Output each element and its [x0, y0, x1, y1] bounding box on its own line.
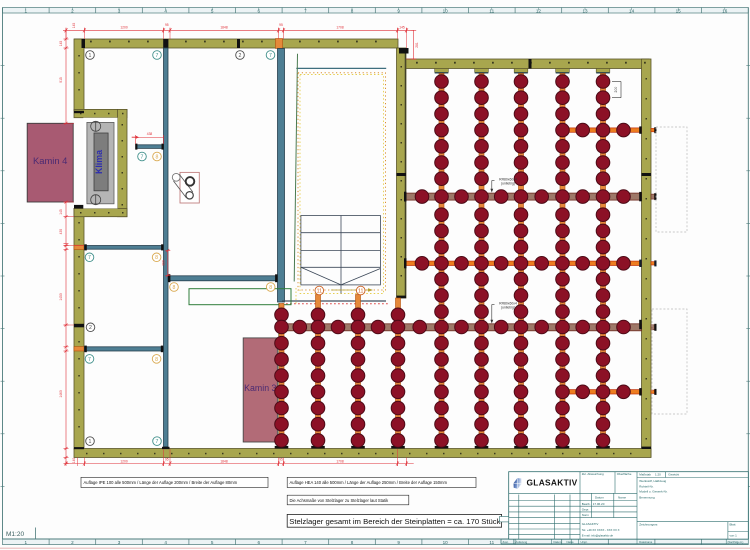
svg-text:Kamin 4: Kamin 4 [33, 155, 67, 166]
svg-text:1848: 1848 [220, 25, 228, 29]
svg-text:1460: 1460 [59, 390, 63, 398]
svg-text:5: 5 [211, 8, 214, 13]
svg-text:1848: 1848 [220, 459, 228, 463]
svg-text:5: 5 [211, 540, 214, 545]
svg-text:7: 7 [269, 53, 272, 59]
svg-text:140: 140 [72, 458, 76, 464]
svg-text:Gepr.: Gepr. [582, 508, 590, 512]
svg-text:2: 2 [71, 8, 74, 13]
svg-text:Änderung: Änderung [516, 540, 528, 544]
svg-text:4: 4 [164, 8, 167, 13]
svg-text:GLASAKTIV: GLASAKTIV [582, 522, 599, 526]
svg-text:1:20: 1:20 [655, 472, 661, 476]
svg-text:Kamin 3: Kamin 3 [244, 383, 276, 393]
svg-text:95: 95 [165, 458, 169, 462]
svg-text:7: 7 [304, 8, 307, 13]
svg-text:12: 12 [536, 8, 542, 13]
svg-text:7: 7 [88, 255, 91, 261]
svg-text:Oberfläche: Oberfläche [617, 472, 632, 476]
svg-text:2: 2 [71, 540, 74, 545]
svg-text:390: 390 [162, 260, 166, 266]
svg-text:8: 8 [351, 8, 354, 13]
svg-text:15: 15 [676, 8, 682, 13]
svg-text:(unliebig): (unliebig) [501, 182, 515, 186]
svg-text:1: 1 [25, 540, 28, 545]
svg-text:Datum: Datum [554, 540, 563, 544]
svg-text:Werkstoff, Halbzeug: Werkstoff, Halbzeug [639, 479, 666, 483]
svg-text:(Nachfolge A.): (Nachfolge A.) [728, 541, 744, 544]
svg-text:13: 13 [582, 8, 588, 13]
svg-text:1: 1 [89, 53, 92, 59]
svg-text:2: 2 [89, 325, 92, 331]
svg-text:10: 10 [443, 8, 449, 13]
svg-text:Gewicht: Gewicht [668, 472, 679, 476]
svg-text:Tel. +49 XX XXXX - XXX XX X: Tel. +49 XX XXXX - XXX XX X [582, 528, 620, 532]
svg-text:145: 145 [59, 209, 63, 215]
svg-text:11: 11 [358, 288, 363, 294]
svg-text:7: 7 [141, 154, 144, 160]
svg-text:1708: 1708 [336, 25, 344, 29]
svg-text:Benennung: Benennung [639, 496, 655, 500]
svg-text:7: 7 [156, 439, 159, 445]
svg-text:Urspr.: Urspr. [581, 540, 588, 544]
svg-text:Name: Name [618, 496, 626, 500]
svg-text:Auflage HEA 140 alle 500mm / L: Auflage HEA 140 alle 500mm / Länge der A… [290, 480, 448, 485]
svg-text:145: 145 [59, 41, 63, 47]
svg-text:8: 8 [269, 285, 272, 291]
svg-text:9: 9 [397, 540, 400, 545]
svg-text:7: 7 [88, 357, 91, 363]
svg-text:430: 430 [59, 229, 63, 235]
svg-text:(unliebig): (unliebig) [501, 306, 515, 310]
svg-text:10: 10 [443, 540, 449, 545]
svg-text:145: 145 [399, 25, 405, 29]
svg-text:915: 915 [59, 77, 63, 83]
svg-text:Modell o. Gesenk-Nr.: Modell o. Gesenk-Nr. [639, 490, 667, 494]
svg-text:Datum: Datum [595, 496, 604, 500]
svg-text:Maßstab: Maßstab [639, 472, 651, 476]
svg-text:6: 6 [258, 540, 261, 545]
svg-text:Rohteil-Nr.: Rohteil-Nr. [639, 485, 653, 489]
svg-text:1708: 1708 [336, 459, 344, 463]
svg-text:3: 3 [118, 8, 121, 13]
svg-text:Blatt: Blatt [730, 523, 736, 527]
svg-text:Norm: Norm [582, 513, 590, 517]
svg-text:7: 7 [156, 53, 159, 59]
svg-text:8: 8 [173, 285, 176, 291]
svg-text:Zeichnungsnr.: Zeichnungsnr. [639, 523, 658, 527]
svg-text:11: 11 [489, 540, 494, 545]
svg-text:11: 11 [317, 288, 322, 294]
svg-text:3: 3 [118, 540, 121, 545]
svg-text:Bearb.: Bearb. [582, 502, 591, 506]
svg-text:95: 95 [165, 23, 169, 27]
svg-text:7: 7 [304, 540, 307, 545]
svg-text:Zul. Abweichung: Zul. Abweichung [582, 472, 604, 476]
svg-text:16: 16 [722, 8, 728, 13]
svg-text:von 1: von 1 [730, 534, 738, 538]
svg-text:11: 11 [489, 8, 494, 13]
svg-text:Auflage IPE 100 alle 500mm / L: Auflage IPE 100 alle 500mm / Länge der A… [84, 480, 238, 485]
svg-text:8: 8 [155, 255, 158, 261]
svg-text:14: 14 [629, 8, 635, 13]
svg-text:1200: 1200 [120, 25, 128, 29]
svg-text:2: 2 [239, 53, 242, 59]
svg-text:E-mail: info@glasaktiv.de: E-mail: info@glasaktiv.de [582, 533, 614, 537]
svg-text:4: 4 [164, 540, 167, 545]
svg-text:Zust.: Zust. [503, 540, 509, 544]
svg-text:1: 1 [89, 439, 92, 445]
svg-text:Dateiname: Dateiname [639, 540, 653, 544]
svg-text:GLASAKTIV: GLASAKTIV [527, 478, 578, 488]
svg-text:8: 8 [351, 540, 354, 545]
svg-text:281: 281 [415, 42, 419, 48]
svg-text:95: 95 [279, 458, 283, 462]
svg-text:Stelzlager gesamt im Bereich d: Stelzlager gesamt im Bereich der Steinpl… [289, 517, 500, 526]
svg-text:1: 1 [25, 8, 28, 13]
svg-text:1200: 1200 [120, 459, 128, 463]
svg-text:6: 6 [258, 8, 261, 13]
svg-text:145: 145 [72, 23, 76, 29]
svg-text:Name: Name [567, 540, 575, 544]
svg-text:200: 200 [614, 87, 618, 93]
svg-text:M1:20: M1:20 [6, 531, 24, 538]
svg-text:8: 8 [156, 154, 159, 160]
svg-text:9: 9 [397, 8, 400, 13]
svg-text:8: 8 [155, 357, 158, 363]
svg-text:95: 95 [279, 23, 283, 27]
svg-text:17.06.20: 17.06.20 [593, 502, 605, 506]
svg-text:1450: 1450 [59, 293, 63, 301]
svg-text:Die Achsmaße von Stelzlager zu: Die Achsmaße von Stelzlager zu Stelzlage… [290, 498, 390, 503]
svg-text:Klima: Klima [94, 150, 104, 174]
svg-text:438: 438 [147, 132, 153, 136]
